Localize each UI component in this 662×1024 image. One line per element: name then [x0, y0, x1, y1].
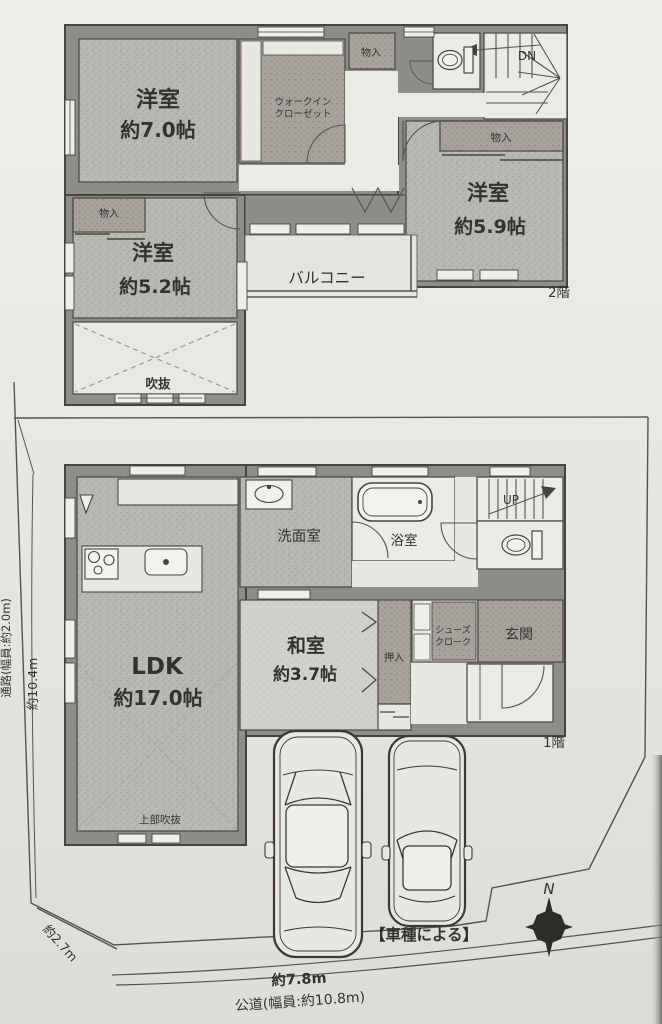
wic-label-1: ウォークイン — [274, 97, 331, 108]
scan-edge-shadow — [650, 755, 662, 1024]
yoshitsu59-name: 洋室 — [467, 181, 509, 205]
shoes-label-2: クローク — [435, 637, 471, 648]
floor1-label: 1階 — [543, 735, 565, 751]
stairs-up-area — [477, 477, 563, 521]
yoshitsu52-size: 約5.2帖 — [119, 275, 191, 298]
washbasin-icon — [246, 480, 292, 509]
washitsu-name: 和室 — [287, 634, 325, 657]
bathtub-icon — [358, 483, 432, 521]
car-illustration-1 — [265, 731, 371, 957]
bath-label: 浴室 — [391, 532, 418, 549]
storage-right-label: 物入 — [491, 131, 512, 144]
yoshitsu52-name: 洋室 — [132, 241, 174, 265]
yoshitsu7-name: 洋室 — [136, 87, 180, 113]
left-depth-dim-label: 約10.4m — [25, 658, 40, 711]
balcony-area — [245, 235, 417, 297]
compass-north-label: N — [543, 880, 554, 898]
wic-label-2: クローゼット — [274, 108, 331, 120]
floor2-label: 2階 — [548, 285, 570, 301]
floorplan-page: 洋室 約7.0帖 ウォークイン クローゼット 物入 物入 物入 洋室 約5.2帖… — [0, 0, 662, 1024]
passage-dim-label: 通路(幅員:約2.0m) — [0, 598, 13, 698]
ldk-name: LDK — [131, 654, 184, 680]
upper-void-label: 上部吹抜 — [139, 813, 181, 826]
yoshitsu7-size: 約7.0帖 — [120, 118, 195, 142]
oshiire-label: 押入 — [384, 651, 404, 664]
yoshitsu59-size: 約5.9帖 — [454, 215, 526, 238]
void-label: 吹抜 — [145, 376, 171, 391]
genkan-label: 玄関 — [505, 626, 533, 643]
stairs-dn-label: DN — [518, 49, 536, 63]
storage-left-label: 物入 — [99, 207, 119, 220]
shoes-label-1: シューズ — [435, 624, 471, 636]
storage-top-label: 物入 — [361, 46, 381, 59]
car-illustration-2 — [382, 736, 472, 926]
stairs-up-label: UP — [503, 493, 519, 507]
floorplan-svg: 洋室 約7.0帖 ウォークイン クローゼット 物入 物入 物入 洋室 約5.2帖… — [0, 0, 662, 1024]
balcony-label: バルコニー — [288, 269, 365, 287]
oshiire-closet — [378, 600, 411, 704]
ldk-size: 約17.0帖 — [113, 686, 202, 710]
car-note-label: 【車種による】 — [370, 925, 478, 944]
senmen-label: 洗面室 — [277, 528, 321, 545]
washitsu-size: 約3.7帖 — [273, 664, 337, 685]
